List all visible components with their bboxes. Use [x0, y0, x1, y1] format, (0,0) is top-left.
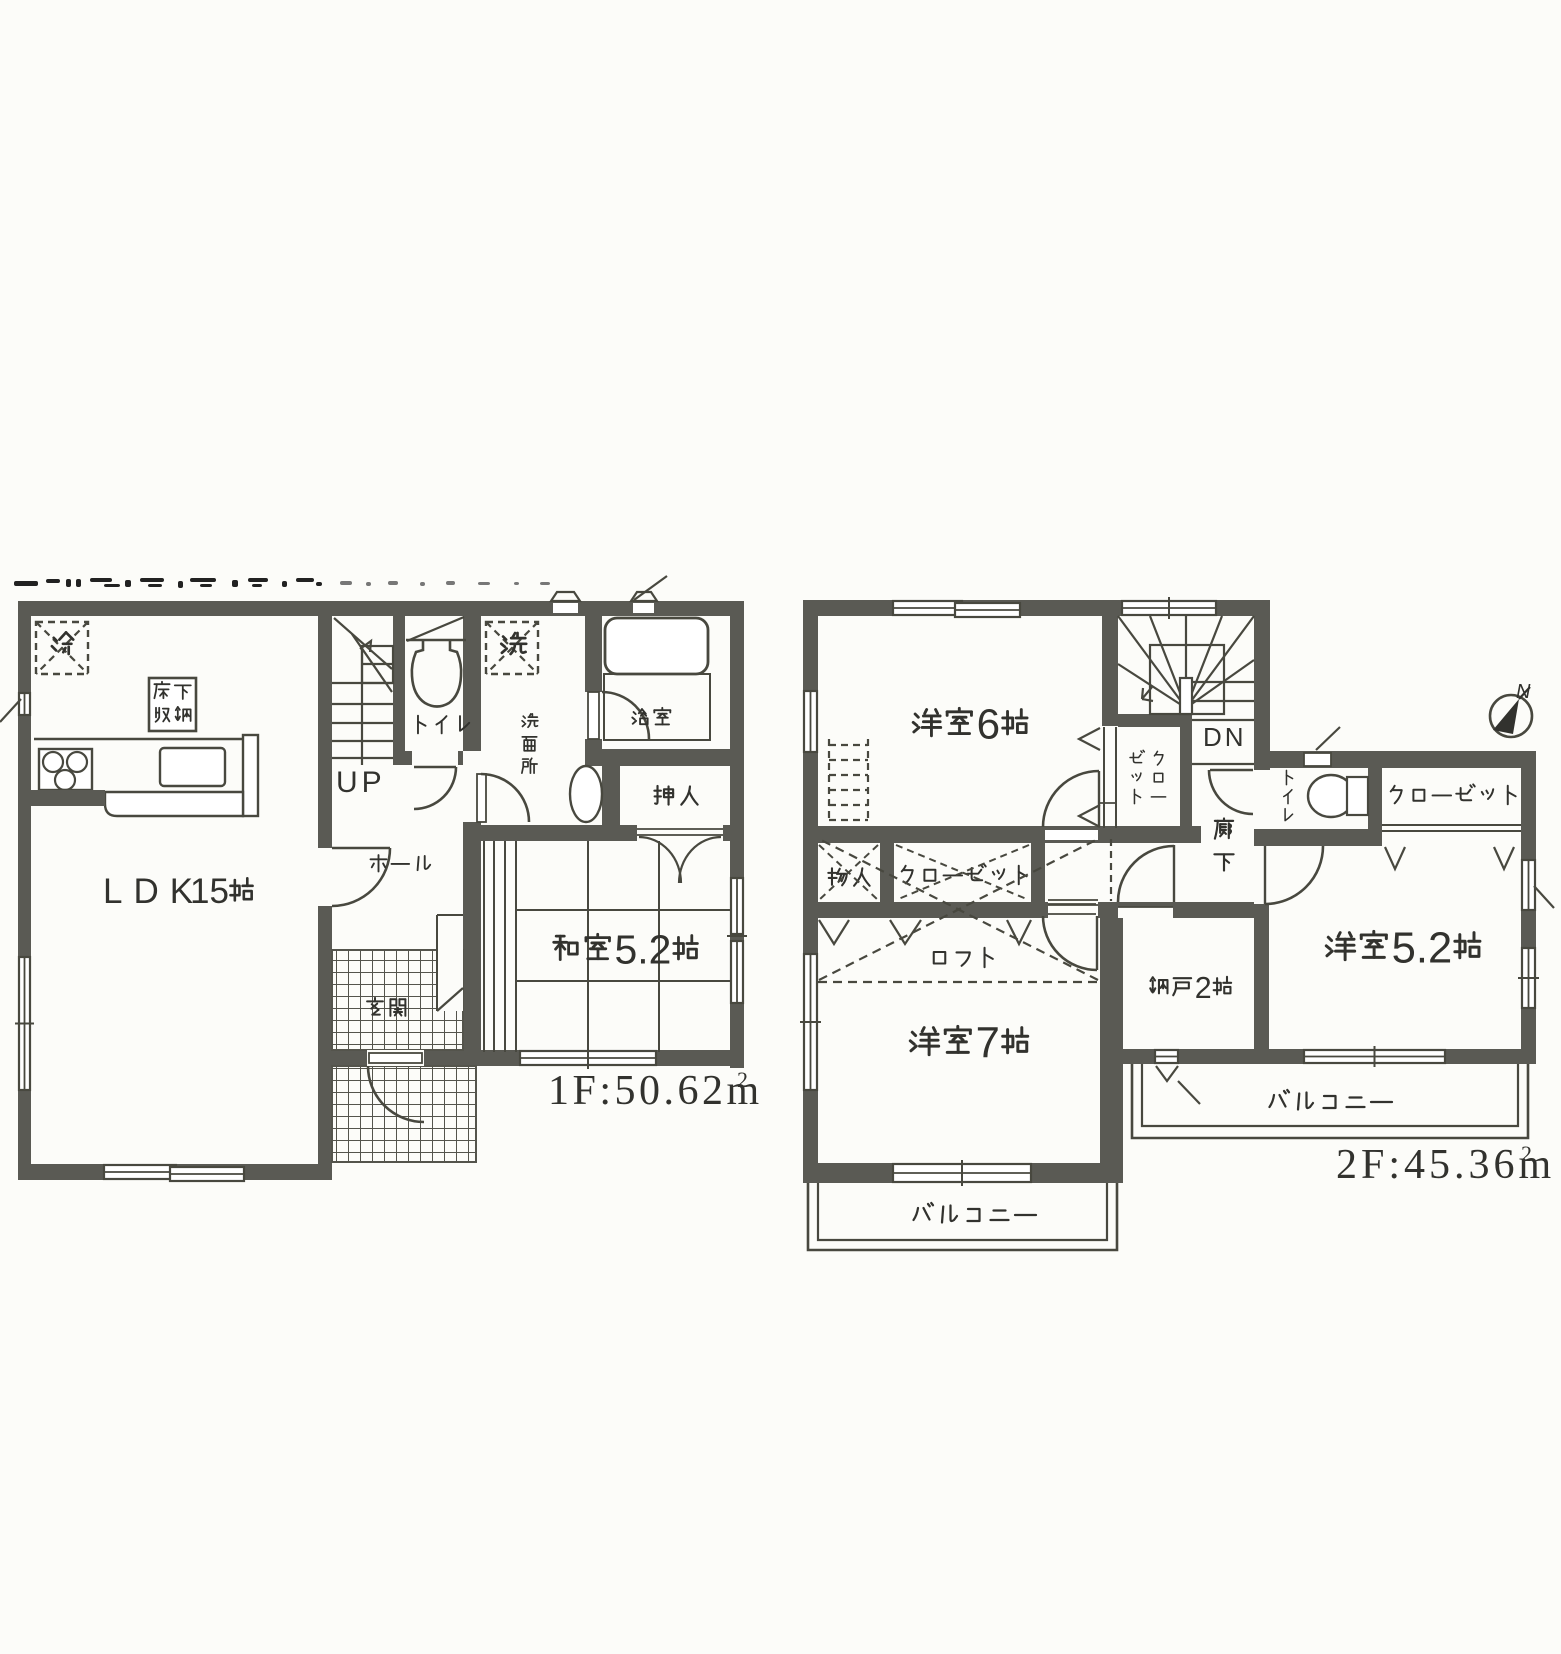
svg-text:5.2: 5.2: [1392, 925, 1453, 973]
svg-text:5.2: 5.2: [615, 927, 672, 973]
svg-text:7: 7: [976, 1020, 1000, 1068]
svg-text:2: 2: [1195, 971, 1212, 1005]
svg-text:2: 2: [737, 1067, 748, 1092]
svg-text:15: 15: [190, 872, 229, 911]
svg-text:2: 2: [1521, 1141, 1532, 1166]
svg-text:N: N: [1516, 681, 1531, 703]
svg-text:6: 6: [977, 701, 1000, 748]
svg-text:DN: DN: [1203, 722, 1247, 752]
svg-text:1F:50.62m: 1F:50.62m: [548, 1068, 763, 1114]
svg-text:UP: UP: [336, 766, 386, 799]
svg-text:LDK: LDK: [103, 872, 204, 911]
